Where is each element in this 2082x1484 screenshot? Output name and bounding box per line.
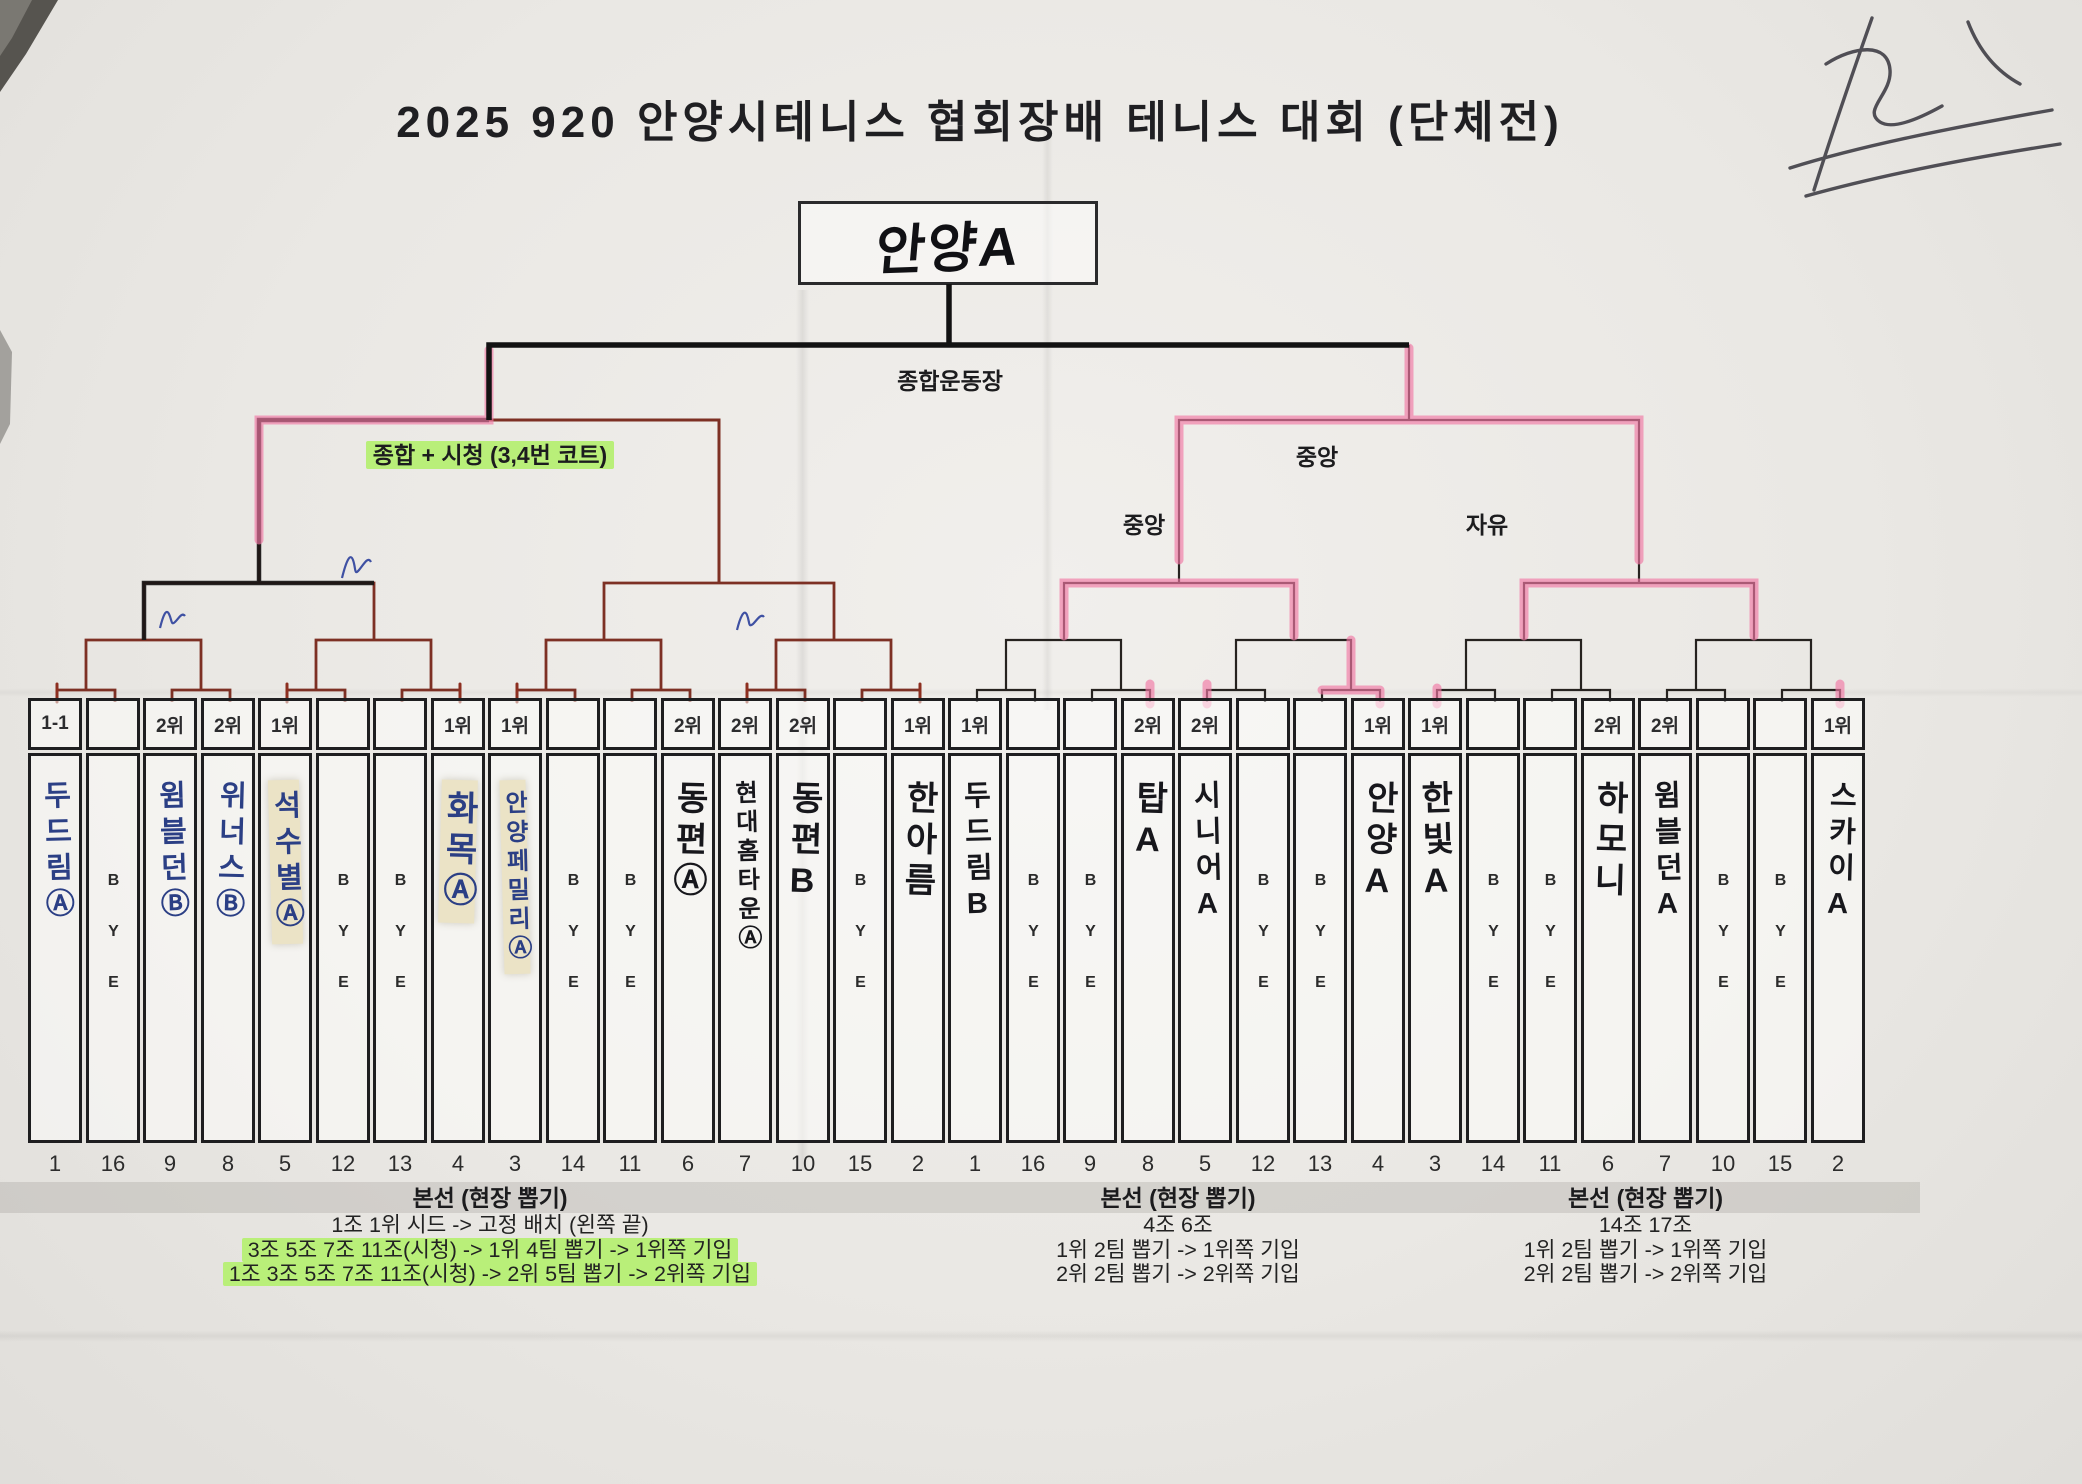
team-name: 화목Ⓐ: [438, 780, 478, 924]
note-line-text: 1위 2팀 뽑기 -> 1위쪽 기입: [1524, 1238, 1768, 1262]
group-rank-label: [603, 698, 657, 750]
draw-notes-header: 본선 (현장 뽑기): [958, 1183, 1398, 1213]
team-name: 한아름: [899, 780, 936, 904]
note-line-text: 14조 17조: [1599, 1213, 1692, 1237]
team-name: BYE: [622, 872, 638, 1025]
team-name: 동편B: [784, 780, 821, 908]
team-name: BYE: [1025, 872, 1041, 1025]
bracket-slot: 1위 안양A 4: [1351, 698, 1405, 1177]
bracket-slot: BYE 15: [833, 698, 887, 1177]
team-box: 한빛A: [1408, 753, 1462, 1143]
draw-number: 5: [258, 1151, 312, 1177]
bracket-slot: BYE 9: [1063, 698, 1117, 1177]
group-rank-label: [1466, 698, 1520, 750]
team-box: 윔블던Ⓑ: [143, 753, 197, 1143]
bracket-slot: 1위 한빛A 3: [1408, 698, 1462, 1177]
draw-number: 14: [1466, 1151, 1520, 1177]
group-rank-label: 2위: [1178, 698, 1232, 750]
group-rank-label: 1위: [948, 698, 1002, 750]
group-rank-label: [1236, 698, 1290, 750]
draw-notes-middle: 본선 (현장 뽑기) 4조 6조 1위 2팀 뽑기 -> 1위쪽 기입 2위 2…: [958, 1183, 1398, 1287]
group-rank-label: 1위: [891, 698, 945, 750]
bracket-slot: BYE 15: [1753, 698, 1807, 1177]
draw-number: 13: [1293, 1151, 1347, 1177]
group-rank-label: 1위: [258, 698, 312, 750]
draw-number: 7: [718, 1151, 772, 1177]
group-rank-label: 2위: [1121, 698, 1175, 750]
team-name: 두드림B: [959, 780, 992, 928]
team-box: BYE: [1753, 753, 1807, 1143]
bracket-slot: BYE 13: [373, 698, 427, 1177]
team-name: 윔블던Ⓑ: [154, 780, 187, 925]
note-line-text: 2위 2팀 뽑기 -> 2위쪽 기입: [1056, 1262, 1300, 1286]
team-box: 탑A: [1121, 753, 1175, 1143]
bracket-slot: BYE 10: [1696, 698, 1750, 1177]
team-name: BYE: [1312, 872, 1328, 1025]
team-name: 두드림Ⓐ: [39, 780, 72, 925]
draw-number: 8: [201, 1151, 255, 1177]
draw-number: 11: [603, 1151, 657, 1177]
team-name: 현대홈타운Ⓐ: [731, 780, 760, 955]
team-name: BYE: [1772, 872, 1788, 1025]
bracket-slot: BYE 12: [316, 698, 370, 1177]
group-rank-label: 2위: [143, 698, 197, 750]
group-rank-label: [316, 698, 370, 750]
draw-number: 4: [431, 1151, 485, 1177]
team-name: 시니어A: [1189, 780, 1222, 928]
team-box: BYE: [373, 753, 427, 1143]
bracket-slot: 1-1 두드림Ⓐ 1: [28, 698, 82, 1177]
team-box: BYE: [546, 753, 600, 1143]
bracket-slot: BYE 13: [1293, 698, 1347, 1177]
draw-number: 16: [86, 1151, 140, 1177]
team-box: 스카이A: [1811, 753, 1865, 1143]
team-name: 스카이A: [1822, 780, 1855, 928]
team-box: BYE: [833, 753, 887, 1143]
team-name: 한빛A: [1416, 780, 1453, 908]
team-name: BYE: [105, 872, 121, 1025]
team-box: 안양A: [1351, 753, 1405, 1143]
team-name: BYE: [565, 872, 581, 1025]
draw-number: 9: [1063, 1151, 1117, 1177]
team-name: 하모니: [1589, 780, 1626, 904]
bracket-slot: 2위 현대홈타운Ⓐ 7: [718, 698, 772, 1177]
team-name: BYE: [1255, 872, 1271, 1025]
group-rank-label: 1위: [488, 698, 542, 750]
note-line-text: 2위 2팀 뽑기 -> 2위쪽 기입: [1524, 1262, 1768, 1286]
draw-number: 6: [661, 1151, 715, 1177]
team-box: 동편B: [776, 753, 830, 1143]
team-box: 현대홈타운Ⓐ: [718, 753, 772, 1143]
draw-number: 9: [143, 1151, 197, 1177]
team-box: BYE: [1523, 753, 1577, 1143]
draw-number: 1: [948, 1151, 1002, 1177]
team-box: 윔블던A: [1638, 753, 1692, 1143]
group-rank-label: [373, 698, 427, 750]
draw-number: 14: [546, 1151, 600, 1177]
team-box: 화목Ⓐ: [431, 753, 485, 1143]
note-line-text: 4조 6조: [1143, 1213, 1212, 1237]
group-rank-label: 2위: [661, 698, 715, 750]
bracket-slot: 2위 윔블던A 7: [1638, 698, 1692, 1177]
team-name: 탑A: [1130, 780, 1166, 867]
team-box: 석수별Ⓐ: [258, 753, 312, 1143]
team-name: 동편Ⓐ: [669, 780, 706, 904]
team-name: 안양페밀리Ⓐ: [499, 780, 530, 975]
draw-notes-header: 본선 (현장 뽑기): [40, 1183, 940, 1213]
bracket-slot: 2위 탑A 8: [1121, 698, 1175, 1177]
draw-number: 3: [1408, 1151, 1462, 1177]
group-rank-label: [1063, 698, 1117, 750]
team-box: BYE: [1696, 753, 1750, 1143]
draw-number: 5: [1178, 1151, 1232, 1177]
team-box: BYE: [1466, 753, 1520, 1143]
bracket-slot: 2위 동편Ⓐ 6: [661, 698, 715, 1177]
group-rank-label: 1위: [1351, 698, 1405, 750]
group-rank-label: 1위: [431, 698, 485, 750]
draw-number: 12: [1236, 1151, 1290, 1177]
note-line-text: 1조 1위 시드 -> 고정 배치 (왼쪽 끝): [331, 1213, 648, 1237]
draw-number: 4: [1351, 1151, 1405, 1177]
group-rank-label: [1523, 698, 1577, 750]
team-box: BYE: [1236, 753, 1290, 1143]
team-name: BYE: [1485, 872, 1501, 1025]
group-rank-label: 1-1: [28, 698, 82, 750]
team-box: BYE: [1293, 753, 1347, 1143]
bracket-slot: BYE 14: [1466, 698, 1520, 1177]
bracket-slot: 1위 화목Ⓐ 4: [431, 698, 485, 1177]
draw-number: 8: [1121, 1151, 1175, 1177]
team-name: BYE: [335, 872, 351, 1025]
group-rank-label: [546, 698, 600, 750]
team-name: BYE: [1542, 872, 1558, 1025]
draw-number: 6: [1581, 1151, 1635, 1177]
bracket-slot: BYE 14: [546, 698, 600, 1177]
draw-number: 16: [1006, 1151, 1060, 1177]
draw-number: 12: [316, 1151, 370, 1177]
draw-number: 3: [488, 1151, 542, 1177]
bracket-slot: BYE 12: [1236, 698, 1290, 1177]
bracket-slot: BYE 16: [86, 698, 140, 1177]
bracket-slot: BYE 11: [1523, 698, 1577, 1177]
team-name: BYE: [392, 872, 408, 1025]
team-box: 하모니: [1581, 753, 1635, 1143]
group-rank-label: 2위: [1581, 698, 1635, 750]
team-name: 안양A: [1359, 780, 1396, 908]
team-name: 윔블던A: [1649, 780, 1682, 928]
group-rank-label: 2위: [776, 698, 830, 750]
draw-number: 15: [833, 1151, 887, 1177]
bracket-slot: 2위 동편B 10: [776, 698, 830, 1177]
team-name: 석수별Ⓐ: [267, 780, 302, 945]
team-name: BYE: [1082, 872, 1098, 1025]
note-line-text: 1조 3조 5조 7조 11조(시청) -> 2위 5팀 뽑기 -> 2위쪽 기…: [223, 1262, 757, 1286]
bracket-slot: 1위 한아름 2: [891, 698, 945, 1177]
draw-number: 7: [1638, 1151, 1692, 1177]
draw-number: 11: [1523, 1151, 1577, 1177]
team-box: BYE: [86, 753, 140, 1143]
bracket-slot: 1위 스카이A 2: [1811, 698, 1865, 1177]
group-rank-label: [1696, 698, 1750, 750]
group-rank-label: [86, 698, 140, 750]
draw-number: 15: [1753, 1151, 1807, 1177]
team-box: 두드림B: [948, 753, 1002, 1143]
draw-number: 1: [28, 1151, 82, 1177]
bracket-slot: 1위 석수별Ⓐ 5: [258, 698, 312, 1177]
group-rank-label: [1293, 698, 1347, 750]
team-name: BYE: [852, 872, 868, 1025]
draw-notes-left: 본선 (현장 뽑기) 1조 1위 시드 -> 고정 배치 (왼쪽 끝) 3조 5…: [40, 1183, 940, 1287]
team-box: 동편Ⓐ: [661, 753, 715, 1143]
bracket-slot: 1위 안양페밀리Ⓐ 3: [488, 698, 542, 1177]
group-rank-label: 2위: [718, 698, 772, 750]
team-name: BYE: [1715, 872, 1731, 1025]
bracket-slot: BYE 11: [603, 698, 657, 1177]
note-line-text: 3조 5조 7조 11조(시청) -> 1위 4팀 뽑기 -> 1위쪽 기입: [242, 1238, 738, 1262]
bracket-slot: 2위 윔블던Ⓑ 9: [143, 698, 197, 1177]
group-rank-label: [833, 698, 887, 750]
bracket-slot: 2위 위너스Ⓑ 8: [201, 698, 255, 1177]
group-rank-label: 1위: [1408, 698, 1462, 750]
draw-number: 2: [891, 1151, 945, 1177]
team-box: BYE: [1063, 753, 1117, 1143]
team-box: 한아름: [891, 753, 945, 1143]
group-rank-label: 2위: [1638, 698, 1692, 750]
draw-number: 10: [1696, 1151, 1750, 1177]
draw-number: 10: [776, 1151, 830, 1177]
bracket-slot: 1위 두드림B 1: [948, 698, 1002, 1177]
group-rank-label: 2위: [201, 698, 255, 750]
draw-number: 13: [373, 1151, 427, 1177]
group-rank-label: [1753, 698, 1807, 750]
bracket-slot: BYE 16: [1006, 698, 1060, 1177]
team-box: BYE: [603, 753, 657, 1143]
team-box: BYE: [316, 753, 370, 1143]
group-rank-label: [1006, 698, 1060, 750]
team-box: 위너스Ⓑ: [201, 753, 255, 1143]
team-box: 두드림Ⓐ: [28, 753, 82, 1143]
team-name: 위너스Ⓑ: [212, 780, 245, 925]
team-box: BYE: [1006, 753, 1060, 1143]
draw-number: 2: [1811, 1151, 1865, 1177]
bracket-slot: 2위 시니어A 5: [1178, 698, 1232, 1177]
draw-notes-header: 본선 (현장 뽑기): [1388, 1183, 1903, 1213]
bracket-slot: 2위 하모니 6: [1581, 698, 1635, 1177]
draw-notes-right: 본선 (현장 뽑기) 14조 17조 1위 2팀 뽑기 -> 1위쪽 기입 2위…: [1388, 1183, 1903, 1287]
team-box: 안양페밀리Ⓐ: [488, 753, 542, 1143]
note-line-text: 1위 2팀 뽑기 -> 1위쪽 기입: [1056, 1238, 1300, 1262]
group-rank-label: 1위: [1811, 698, 1865, 750]
team-box: 시니어A: [1178, 753, 1232, 1143]
